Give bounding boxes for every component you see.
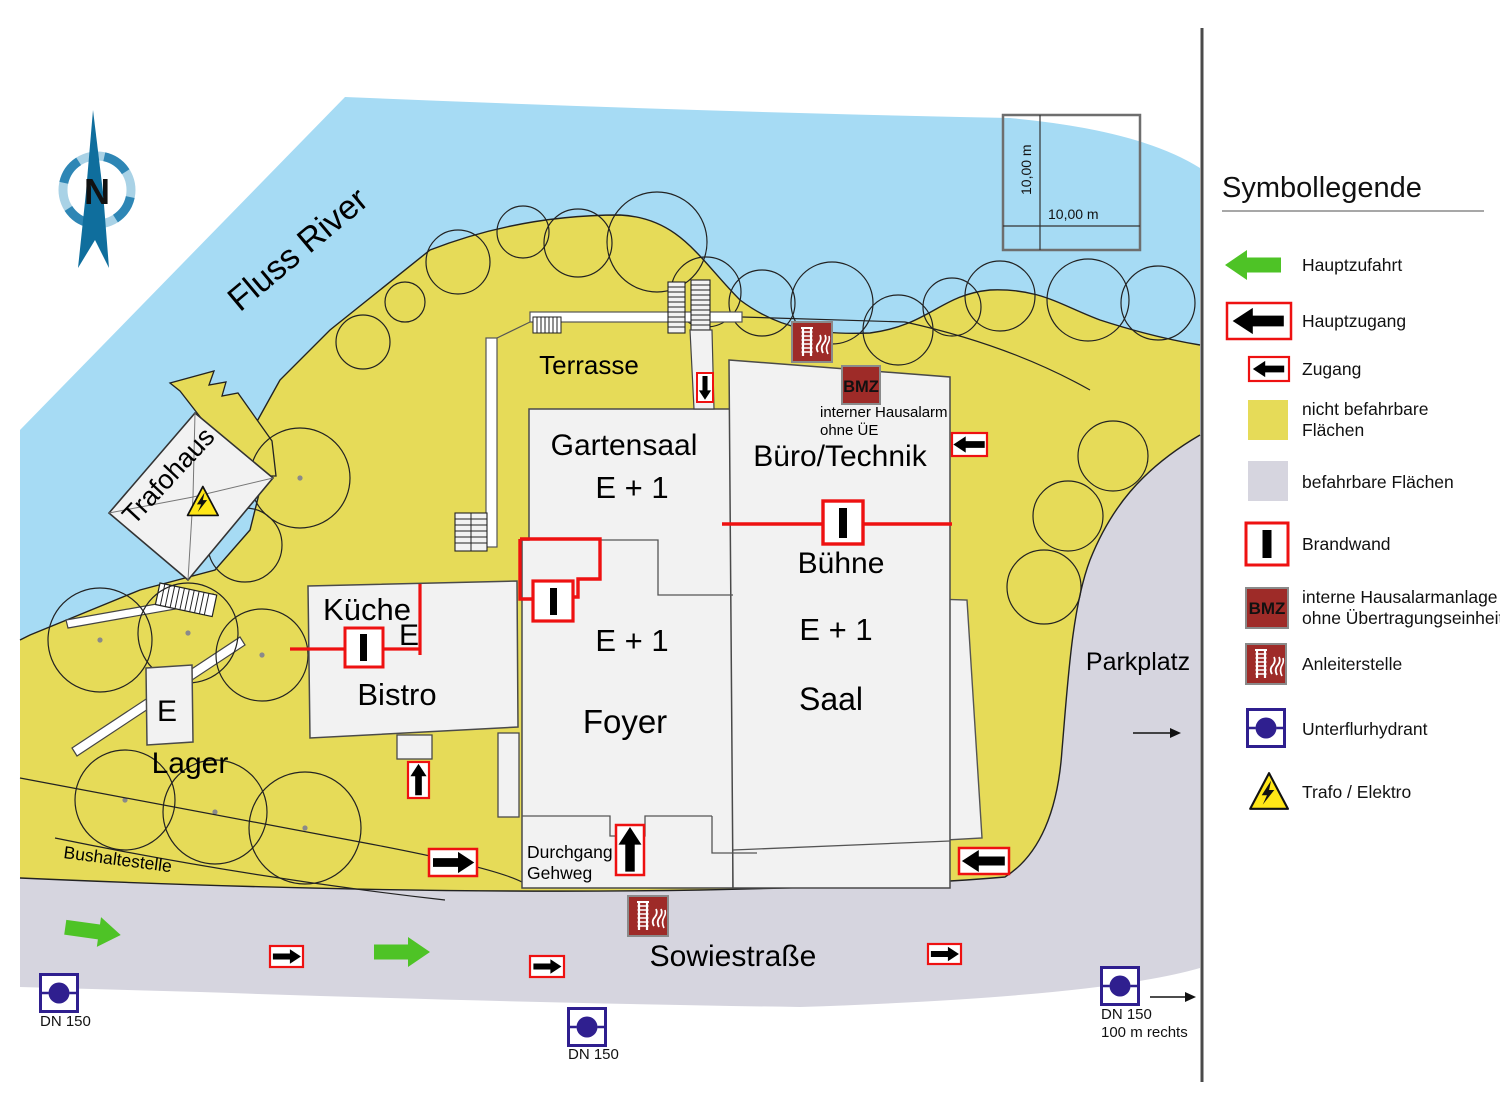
zugang-street-east-arrow [928, 944, 961, 964]
zugang-saal-arrow [959, 848, 1009, 874]
legend-item-hauptzufahrt: Hauptzufahrt [1225, 250, 1402, 280]
site-plan-canvas: 10,00 m 10,00 m [0, 0, 1500, 1104]
zugang-street-west-arrow [270, 946, 303, 967]
hydrant-east-label-1: DN 150 [1101, 1006, 1152, 1023]
bistro-foyer-corridor [498, 733, 519, 817]
buehne-label: Bühne [798, 547, 885, 580]
drivable-area-swatch [1248, 461, 1288, 501]
legend-item-unterflurhydrant: Unterflurhydrant [1248, 710, 1428, 747]
foyer-level-label: E + 1 [595, 623, 668, 658]
anleiterstelle-street-icon [628, 896, 668, 936]
legend-label-unterflurhydrant: Unterflurhydrant [1302, 719, 1428, 739]
bmz-marker-text: BMZ [843, 378, 879, 396]
hydrant-center-label: DN 150 [568, 1046, 619, 1063]
zugang-buero-arrow [952, 433, 987, 456]
terrasse-label: Terrasse [539, 350, 639, 380]
durchgang-label-1: Durchgang [527, 842, 613, 862]
legend-panel: Symbollegende Hauptzufahrt Hauptzugang Z… [1222, 172, 1500, 809]
legend-label-drivable: befahrbare Flächen [1302, 472, 1454, 492]
compass-rose: N [57, 110, 138, 268]
hydrant-east-label-2: 100 m rechts [1101, 1024, 1188, 1041]
saal-label: Saal [799, 681, 863, 717]
legend-label-zugang: Zugang [1302, 359, 1361, 379]
lager-label: Lager [152, 747, 229, 780]
buero-label: Büro/Technik [753, 440, 927, 473]
sowiestrasse-label: Sowiestraße [650, 940, 817, 973]
stairs-north-1 [668, 282, 685, 333]
legend-item-anleiterstelle: Anleiterstelle [1246, 644, 1402, 684]
stairs-north-2 [691, 280, 710, 330]
gartensaal-level-label: E + 1 [595, 470, 668, 505]
bistro-annex [397, 735, 432, 759]
legend-bmz-icon-text: BMZ [1249, 599, 1286, 618]
stairs-gartensaal [455, 513, 487, 551]
legend-item-bmz: BMZ interne Hausalarmanlage ohne Übertra… [1246, 587, 1500, 628]
legend-label-bmz-1: interne Hausalarmanlage [1302, 587, 1498, 607]
stairs-terrasse [533, 317, 561, 333]
gartensaal-label: Gartensaal [551, 429, 698, 462]
zugang-street-center-arrow [530, 956, 564, 977]
legend-label-restricted-1: nicht befahrbare [1302, 399, 1428, 419]
kueche-label: Küche [323, 592, 411, 627]
legend-label-brandwand: Brandwand [1302, 534, 1391, 554]
legend-item-drivable-area: befahrbare Flächen [1248, 461, 1454, 501]
foyer-label: Foyer [583, 703, 667, 740]
lager-level-label: E [157, 695, 177, 728]
trafo-elektro-icon [1250, 773, 1288, 809]
bistro-label: Bistro [357, 677, 436, 712]
hausalarm-note-2: ohne ÜE [820, 421, 878, 439]
hydrant-center: DN 150 [568, 1009, 619, 1064]
restricted-area-swatch [1248, 400, 1288, 440]
parkplatz-label: Parkplatz [1086, 648, 1190, 676]
hauptzufahrt-icon [1225, 250, 1281, 280]
bmz-marker: BMZ [842, 366, 880, 404]
kueche-level-label: E [399, 619, 419, 652]
legend-label-trafo: Trafo / Elektro [1302, 782, 1411, 802]
site-plan-page: 10,00 m 10,00 m [0, 0, 1500, 1104]
hauptzugang-east-arrow [429, 849, 477, 876]
anleiterstelle-icon [1246, 644, 1286, 684]
legend-item-trafo: Trafo / Elektro [1250, 773, 1411, 809]
saal-level-label: E + 1 [799, 612, 872, 647]
durchgang-label-2: Gehweg [527, 863, 592, 883]
zugang-bistro-arrow [408, 762, 429, 798]
unterflurhydrant-icon [1248, 710, 1285, 747]
legend-item-hauptzugang: Hauptzugang [1227, 303, 1406, 339]
anleiterstelle-north-icon [792, 322, 832, 362]
legend-item-brandwand: Brandwand [1246, 523, 1391, 565]
scale-horizontal-label: 10,00 m [1048, 206, 1099, 222]
legend-label-bmz-2: ohne Übertragungseinheit [1302, 608, 1500, 628]
legend-label-hauptzufahrt: Hauptzufahrt [1302, 255, 1402, 275]
hauptzugang-foyer-arrow [616, 825, 644, 875]
legend-item-restricted-area: nicht befahrbare Flächen [1248, 399, 1428, 440]
hausalarm-note-1: interner Hausalarm [820, 404, 948, 421]
hydrant-west-label: DN 150 [40, 1013, 91, 1030]
zugang-terrasse-arrow [697, 373, 713, 402]
legend-label-anleiterstelle: Anleiterstelle [1302, 654, 1402, 674]
legend-label-restricted-2: Flächen [1302, 420, 1364, 440]
scale-vertical-label: 10,00 m [1018, 144, 1034, 195]
legend-label-hauptzugang: Hauptzugang [1302, 311, 1406, 331]
legend-title: Symbollegende [1222, 172, 1422, 204]
compass-north-letter: N [84, 171, 110, 212]
legend-item-zugang: Zugang [1249, 357, 1361, 381]
